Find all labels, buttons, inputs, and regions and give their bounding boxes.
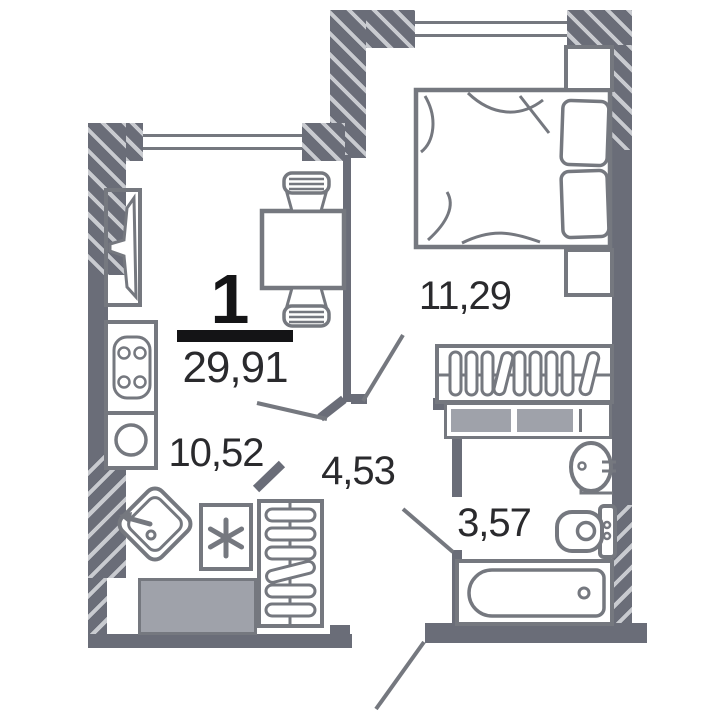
wardrobe-rail	[437, 346, 612, 402]
pillow	[561, 100, 609, 166]
burner	[119, 348, 130, 359]
washer-asterisk-icon	[210, 520, 241, 556]
nightstand	[566, 250, 612, 295]
nightstand	[566, 47, 612, 90]
plan-graphics	[0, 0, 720, 720]
room-area-label-kitchen-living: 10,52	[156, 433, 276, 473]
kitchen-sink	[115, 484, 194, 563]
tv	[106, 190, 140, 305]
pillow	[561, 170, 609, 238]
toilet	[557, 506, 615, 557]
room-area-label-bedroom: 11,29	[405, 276, 525, 316]
bathtub	[457, 561, 612, 624]
total-area-divider	[177, 330, 293, 342]
burner	[135, 348, 146, 359]
bathroom-sink	[571, 443, 616, 493]
room-area-label-bathroom: 3,57	[434, 503, 554, 543]
floor-plan-canvas: 1 29,91 11,29 10,52 4,53 3,57	[0, 0, 720, 720]
burner	[119, 377, 130, 388]
kitchen-unit-round	[106, 413, 156, 468]
rooms-count-label: 1	[180, 264, 280, 334]
room-area-label-hall: 4,53	[298, 451, 418, 491]
chair	[284, 288, 329, 326]
total-area-label: 29,91	[175, 346, 295, 390]
bed	[416, 90, 610, 247]
stove	[106, 322, 156, 413]
chair	[284, 173, 329, 211]
wardrobe-rail-vertical	[259, 501, 322, 626]
burner	[135, 377, 146, 388]
